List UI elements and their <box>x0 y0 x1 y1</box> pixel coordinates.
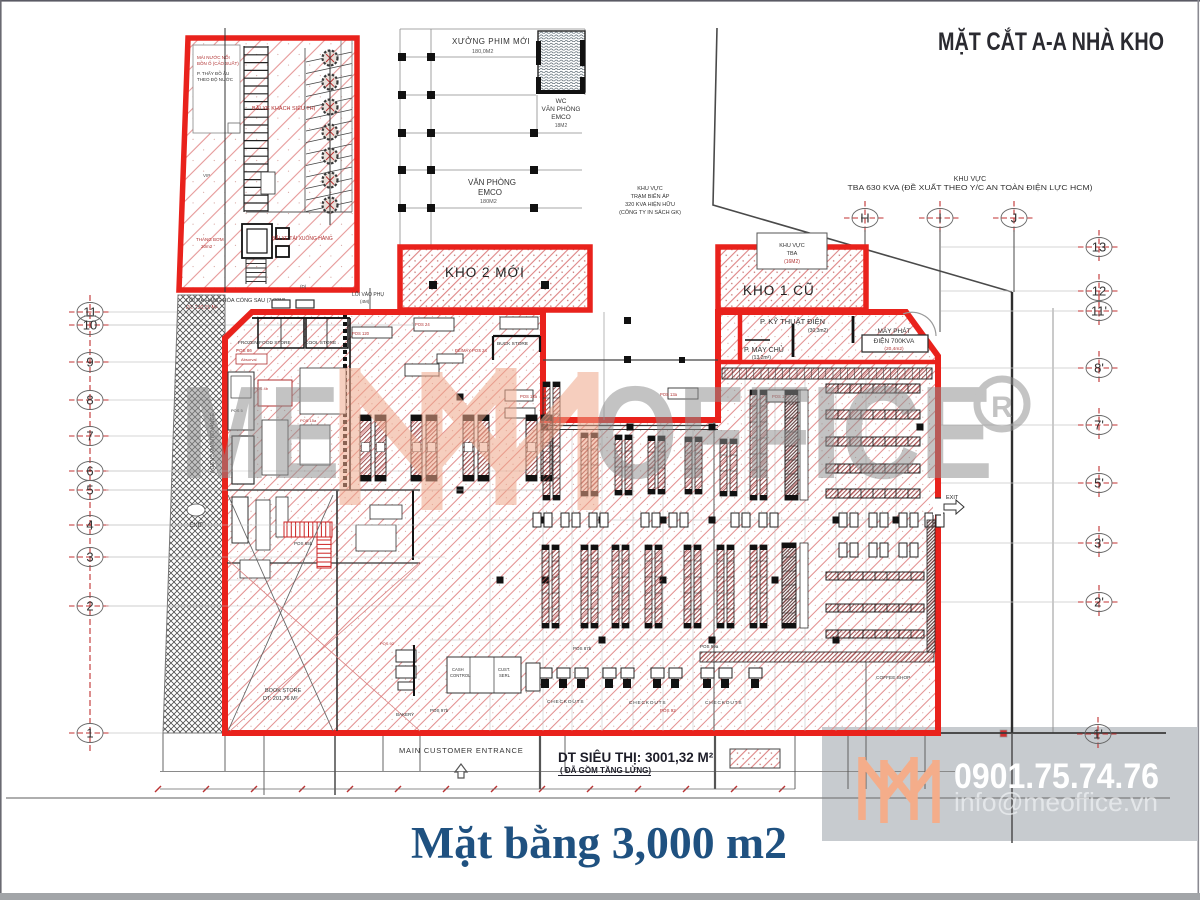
svg-text:KHU VỰC: KHU VỰC <box>637 186 663 192</box>
svg-text:Mặt bằng 3,000 m2: Mặt bằng 3,000 m2 <box>411 818 787 868</box>
svg-text:CASH: CASH <box>452 667 464 672</box>
svg-text:(16M2): (16M2) <box>784 259 800 265</box>
svg-text:FROZEN FOOD STORE: FROZEN FOOD STORE <box>238 340 291 346</box>
svg-text:CHECKOUTS: CHECKOUTS <box>705 700 742 706</box>
svg-text:3: 3 <box>86 550 93 565</box>
svg-text:180M2: 180M2 <box>480 199 497 205</box>
svg-text:MÁY PHÁT: MÁY PHÁT <box>877 326 910 335</box>
svg-text:6: 6 <box>86 464 93 479</box>
svg-text:POS 99a: POS 99a <box>700 644 719 649</box>
svg-text:WC: WC <box>556 98 567 105</box>
svg-text:POS 24: POS 24 <box>415 322 430 327</box>
svg-text:9: 9 <box>86 355 93 370</box>
svg-text:OFFICE: OFFICE <box>593 359 993 506</box>
svg-text:( ĐÃ GỒM TẦNG LỬNG): ( ĐÃ GỒM TẦNG LỬNG) <box>560 765 651 775</box>
svg-text:8: 8 <box>86 393 93 408</box>
svg-text:POS 97b: POS 97b <box>430 708 449 713</box>
svg-text:4: 4 <box>86 518 93 533</box>
svg-text:2': 2' <box>1094 595 1104 610</box>
svg-text:5: 5 <box>86 483 93 498</box>
svg-text:TRẠM BIẾN ÁP: TRẠM BIẾN ÁP <box>631 193 670 200</box>
svg-text:MẶT CẮT A-A NHÀ KHO: MẶT CẮT A-A NHÀ KHO <box>938 26 1164 56</box>
svg-text:POS 92: POS 92 <box>380 641 395 646</box>
svg-text:20m2: 20m2 <box>201 244 213 249</box>
svg-text:BÃI XE KHÁCH SIÊU THỊ: BÃI XE KHÁCH SIÊU THỊ <box>252 104 316 112</box>
svg-text:MAIN CUSTOMER ENTRANCE: MAIN CUSTOMER ENTRANCE <box>399 746 524 755</box>
svg-text:BAKERY: BAKERY <box>396 712 414 717</box>
svg-text:1': 1' <box>1093 727 1103 742</box>
svg-text:18M2: 18M2 <box>555 123 568 129</box>
svg-text:2: 2 <box>86 599 93 614</box>
svg-text:EMCO: EMCO <box>551 114 571 121</box>
svg-text:XƯỞNG PHIM MỚI: XƯỞNG PHIM MỚI <box>452 37 530 46</box>
svg-text:8': 8' <box>1094 361 1104 376</box>
svg-text:POS 86: POS 86 <box>236 348 252 353</box>
svg-text:(4M): (4M) <box>360 299 370 304</box>
svg-text:ME: ME <box>180 359 340 506</box>
svg-text:KHU VỰC: KHU VỰC <box>779 243 805 249</box>
svg-text:VĂN PHÒNG: VĂN PHÒNG <box>468 178 516 187</box>
svg-text:POS 87b: POS 87b <box>573 646 592 651</box>
svg-text:(20,4m2): (20,4m2) <box>884 346 904 352</box>
svg-text:POS 65b: POS 65b <box>294 541 313 546</box>
svg-text:11': 11' <box>1091 304 1107 319</box>
svg-text:13: 13 <box>1092 240 1106 255</box>
svg-text:P. THẤY ĐỒ ẨU: P. THẤY ĐỒ ẨU <box>197 70 229 76</box>
svg-text:THEO ĐỘ NƯỚC: THEO ĐỘ NƯỚC <box>197 76 234 82</box>
svg-text:CHECKOUTS: CHECKOUTS <box>547 699 584 705</box>
svg-text:(CÔNG TY IN SÁCH GK): (CÔNG TY IN SÁCH GK) <box>619 209 681 216</box>
svg-text:3': 3' <box>1094 536 1104 551</box>
svg-text:KHO 2 MỚI: KHO 2 MỚI <box>445 265 525 280</box>
svg-text:320 KVA HIỆN HỮU: 320 KVA HIỆN HỮU <box>625 200 675 208</box>
svg-text:LỐI VÀO PHỤ: LỐI VÀO PHỤ <box>352 291 384 298</box>
svg-text:180,0M2: 180,0M2 <box>472 49 493 55</box>
svg-text:BÃI XE TẢI XUỐNG HÀNG: BÃI XE TẢI XUỐNG HÀNG <box>272 235 333 242</box>
svg-text:KHU VỰC: KHU VỰC <box>954 176 986 183</box>
svg-text:ĐIỆN 700KVA: ĐIỆN 700KVA <box>874 336 915 345</box>
svg-text:EMCO: EMCO <box>478 188 502 197</box>
svg-text:EXIT: EXIT <box>189 523 203 529</box>
svg-text:5': 5' <box>1094 476 1104 491</box>
svg-text:P. KỸ THUẬT ĐIỆN: P. KỸ THUẬT ĐIỆN <box>760 317 825 326</box>
svg-text:TBA: TBA <box>787 251 798 257</box>
svg-text:(D): (D) <box>300 284 307 289</box>
svg-text:BOOK STORE: BOOK STORE <box>265 688 302 694</box>
svg-text:ĐẾ/MÁY POS 24: ĐẾ/MÁY POS 24 <box>455 348 487 353</box>
svg-text:VIP: VIP <box>203 173 210 178</box>
svg-text:R: R <box>991 391 1013 424</box>
svg-text:VĂN PHÒNG: VĂN PHÒNG <box>541 104 580 113</box>
svg-text:info@meoffice.vn: info@meoffice.vn <box>954 787 1158 817</box>
svg-text:BỒN Ố (CẢO SUẤT): BỒN Ố (CẢO SUẤT) <box>197 60 239 66</box>
svg-text:KHO 1 CŨ: KHO 1 CŨ <box>743 283 815 298</box>
svg-text:SERL: SERL <box>499 673 511 678</box>
svg-text:DT SIÊU THỊ: 3001,32 M²: DT SIÊU THỊ: 3001,32 M² <box>558 750 714 765</box>
svg-text:I: I <box>938 211 942 226</box>
svg-text:H: H <box>860 211 869 226</box>
svg-text:POS 92: POS 92 <box>660 708 676 713</box>
svg-text:7: 7 <box>86 429 93 444</box>
svg-text:DT: 201,76 M²: DT: 201,76 M² <box>263 696 298 702</box>
svg-text:COFFEE SHOP: COFFEE SHOP <box>876 675 910 681</box>
svg-text:BUCK STORE: BUCK STORE <box>497 341 528 347</box>
svg-text:(30,3m2): (30,3m2) <box>808 328 828 334</box>
svg-text:CUST.: CUST. <box>498 667 510 672</box>
svg-text:P. MÁY CHỦ: P. MÁY CHỦ <box>744 345 784 354</box>
svg-text:J: J <box>1011 211 1018 226</box>
svg-text:CHECKOUTS: CHECKOUTS <box>629 700 666 706</box>
svg-text:10: 10 <box>83 318 97 333</box>
svg-text:COOL STORE: COOL STORE <box>305 340 336 346</box>
svg-text:1: 1 <box>86 726 93 741</box>
svg-text:CONTROL: CONTROL <box>450 673 471 678</box>
svg-text:7': 7' <box>1094 418 1104 433</box>
svg-text:THÁNG BƠM: THÁNG BƠM <box>196 236 224 242</box>
svg-text:POS 120: POS 120 <box>352 331 370 336</box>
svg-text:POS 12a: POS 12a <box>520 394 538 399</box>
